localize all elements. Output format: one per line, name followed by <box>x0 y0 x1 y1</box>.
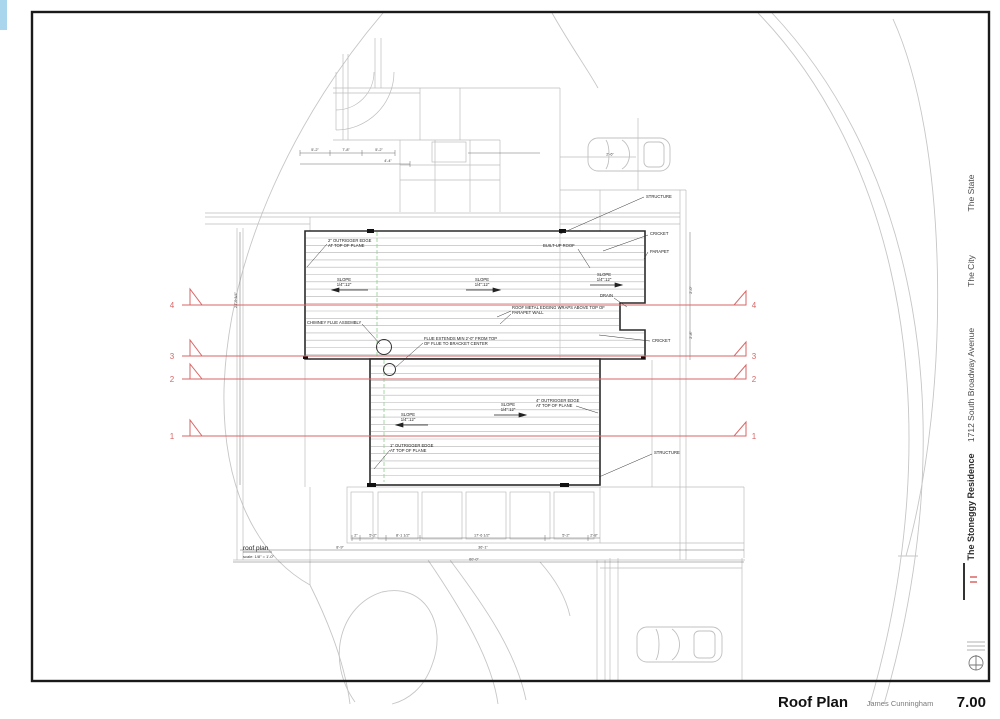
label-chimney: CHIMNEY FLUE ASSEMBLY <box>307 320 362 325</box>
label-built-up-roof: BUILT-UP ROOF <box>543 243 575 248</box>
dim-top-2: 7'-8" <box>342 148 350 152</box>
dim-right-vertical-2: 2'-8" <box>689 331 693 339</box>
lower-roof <box>370 359 600 485</box>
section-3-left: 3 <box>170 352 175 361</box>
label-edge-right-2: AT TOP OF PLANE <box>536 403 573 408</box>
dim-bottom-5: 5'-2" <box>562 534 570 538</box>
dim-bottom-2: 5'-2" <box>369 534 377 538</box>
section-2-right: 2 <box>752 375 757 384</box>
section-4-right: 4 <box>752 301 757 310</box>
label-structure-bottom: STRUCTURE <box>654 450 680 455</box>
section-3-right: 3 <box>752 352 757 361</box>
view-title: roof plan <box>243 545 269 552</box>
label-slope-5-ratio: 1/4":12" <box>501 407 516 412</box>
label-structure-top: STRUCTURE <box>646 194 672 199</box>
dim-left-vertical: 24'-0 3/4" <box>234 291 238 308</box>
dim-bottom-7: 8'-9" <box>336 546 344 550</box>
label-edge-bottom-2: AT TOP OF PLANE <box>390 448 427 453</box>
dim-car: 2'-6" <box>606 153 614 157</box>
label-slope-1-ratio: 1/4":12" <box>337 282 352 287</box>
label-slope-2-ratio: 1/4":12" <box>475 282 490 287</box>
dim-bottom-3: 8'-1 1/2" <box>396 534 411 538</box>
section-1-right: 1 <box>752 432 757 441</box>
dim-bottom-4: 17'-6 1/2" <box>474 534 491 538</box>
project-name: The Stoneggy Residence <box>966 453 976 560</box>
label-slope-3-ratio: 1/4":12" <box>597 277 612 282</box>
label-metal-note-2: PARAPET WALL <box>512 310 544 315</box>
car-bottom-icon <box>637 627 722 662</box>
architect-stamp-icon <box>964 563 985 670</box>
project-address: 1712 South Broadway Avenue <box>966 328 976 442</box>
dim-bottom-1: 2" <box>354 534 358 538</box>
view-title-block: roof plan scale: 1/8" = 1'-0" <box>243 545 275 559</box>
sheet-author: James Cunningham <box>867 699 934 708</box>
car-top-icon <box>588 138 670 171</box>
dim-bottom-9: 60'-0" <box>469 558 479 562</box>
label-cricket-right: CRICKET <box>652 338 671 343</box>
roof-plan-canvas: 5'-2" 7'-8" 5'-2" 4'-4" 2" 5'-2" 8'-1 1/… <box>0 0 1000 719</box>
drawing-sheet: 5'-2" 7'-8" 5'-2" 4'-4" 2" 5'-2" 8'-1 1/… <box>0 0 1000 719</box>
section-4-left: 4 <box>170 301 175 310</box>
dim-top-4: 4'-4" <box>384 159 392 163</box>
label-flue-note-2: OF FLUE TO BRACKET CENTER <box>424 341 488 346</box>
corner-strip <box>0 0 7 30</box>
section-2-left: 2 <box>170 375 175 384</box>
sheet-number: 7.00 <box>957 694 986 711</box>
label-drain: DRAIN <box>600 293 613 298</box>
dim-bottom-8: 36'-1" <box>478 546 488 550</box>
project-state: The State <box>966 174 976 211</box>
label-cricket-top: CRICKET <box>650 231 669 236</box>
sheet-title: Roof Plan <box>778 694 848 711</box>
label-parapet: PARAPET <box>650 249 670 254</box>
dim-top-1: 5'-2" <box>311 148 319 152</box>
sheet-footer: Roof Plan James Cunningham 7.00 <box>778 694 986 711</box>
view-scale: scale: 1/8" = 1'-0" <box>243 554 275 559</box>
dim-top-3: 5'-2" <box>375 148 383 152</box>
title-block: The State The City 1712 South Broadway A… <box>966 174 976 560</box>
label-slope-4-ratio: 1/4":12" <box>401 417 416 422</box>
dim-right-vertical-1: 2'-0" <box>689 286 693 294</box>
dim-bottom-6: 2'-8" <box>590 534 598 538</box>
section-1-left: 1 <box>170 432 175 441</box>
label-edge-top-2: AT TOP OF PLANE <box>328 243 365 248</box>
project-city: The City <box>966 254 976 286</box>
